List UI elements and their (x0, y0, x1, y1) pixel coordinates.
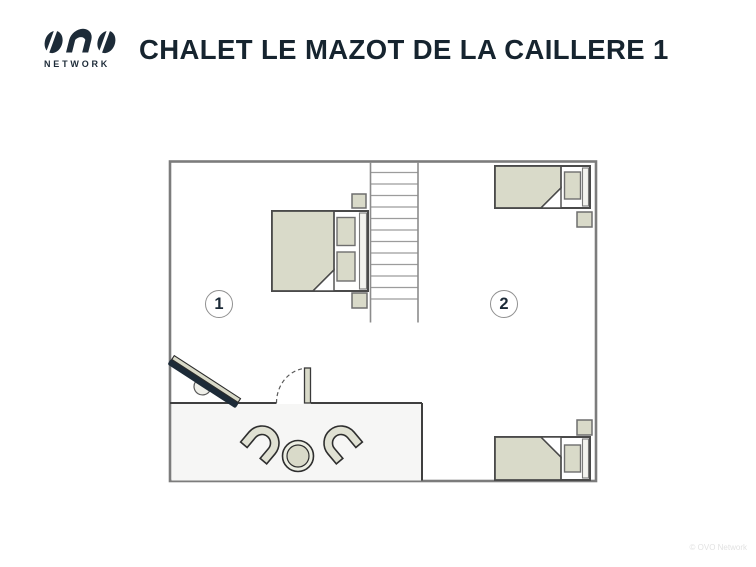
nightstand-icon (352, 293, 367, 308)
copyright-watermark: © OVO Network (690, 543, 747, 552)
nightstand-icon (577, 420, 592, 435)
room-2-number: 2 (499, 295, 508, 314)
single-bed-icon (495, 166, 590, 208)
nightstand-icon (352, 194, 366, 208)
nightstand-icon (577, 212, 592, 227)
room-1-badge: 1 (205, 290, 233, 318)
round-table-icon (283, 441, 314, 472)
floorplan (0, 0, 756, 567)
double-bed-icon (272, 211, 368, 291)
room-2-badge: 2 (490, 290, 518, 318)
room-1-number: 1 (214, 295, 223, 314)
page: NETWORK CHALET LE MAZOT DE LA CAILLERE 1 (0, 0, 756, 567)
single-bed-icon (495, 437, 590, 480)
